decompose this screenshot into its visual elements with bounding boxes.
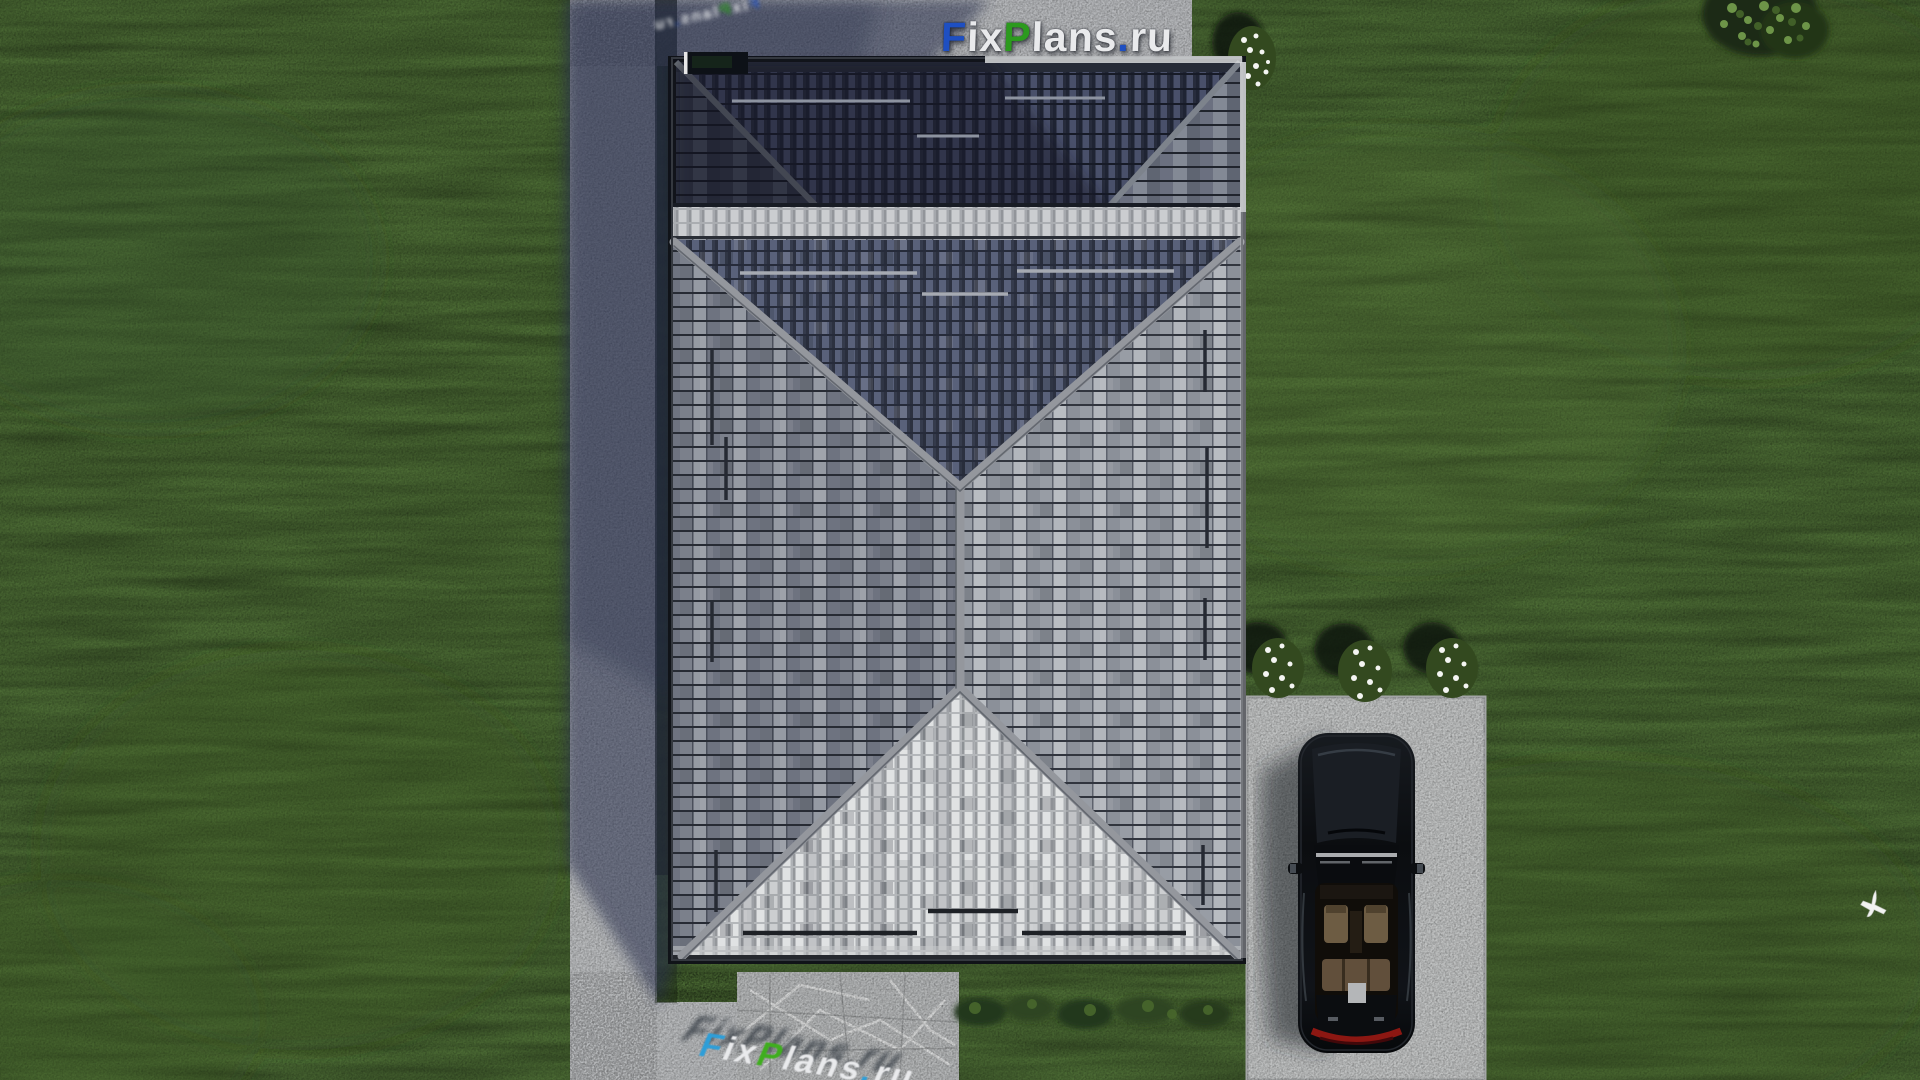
logo-segment: ix	[966, 14, 1004, 60]
logo-segment: F	[940, 14, 968, 60]
roof-rear-wing	[676, 62, 1240, 212]
parked-car	[1260, 733, 1425, 1053]
logo-segment: lans	[1031, 14, 1119, 60]
site-plan-render	[0, 0, 1920, 1080]
aerial-render-viewport: FixPlans.ru FixPlans.ru FixPlans.ru FixP…	[0, 0, 1920, 1080]
flower-bush-row	[1228, 622, 1478, 702]
logo-segment: P	[1002, 14, 1032, 60]
house-roof	[668, 52, 1246, 964]
logo-segment: ru	[1129, 14, 1174, 60]
chimney	[684, 52, 748, 74]
watermark-logo-top: FixPlans.ru	[940, 14, 1174, 61]
